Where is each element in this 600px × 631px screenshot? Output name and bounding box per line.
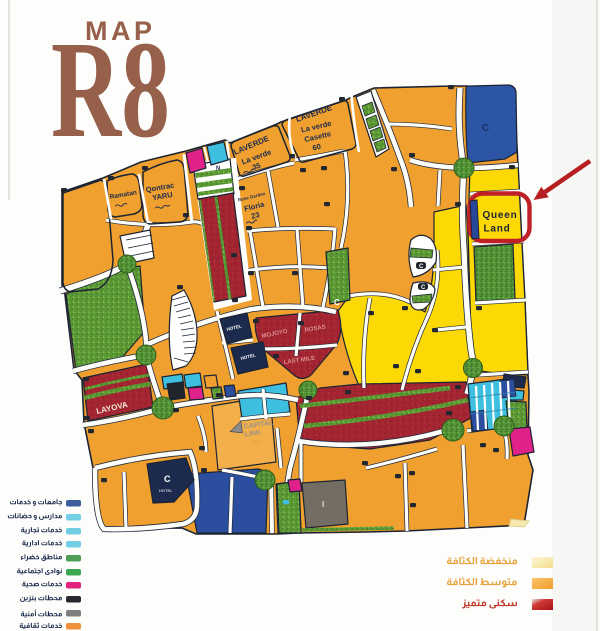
svg-text:Land: Land	[483, 224, 510, 235]
svg-text:N: N	[216, 166, 220, 172]
svg-text:R8: R8	[51, 12, 170, 166]
svg-text:Queen: Queen	[482, 210, 517, 221]
svg-text:C: C	[334, 298, 340, 307]
svg-text:HOTEL: HOTEL	[159, 488, 173, 493]
svg-text:C: C	[419, 264, 424, 270]
svg-text:C: C	[164, 474, 171, 484]
svg-text:I: I	[322, 500, 324, 509]
svg-text:C: C	[421, 285, 426, 291]
svg-text:C: C	[482, 123, 489, 134]
